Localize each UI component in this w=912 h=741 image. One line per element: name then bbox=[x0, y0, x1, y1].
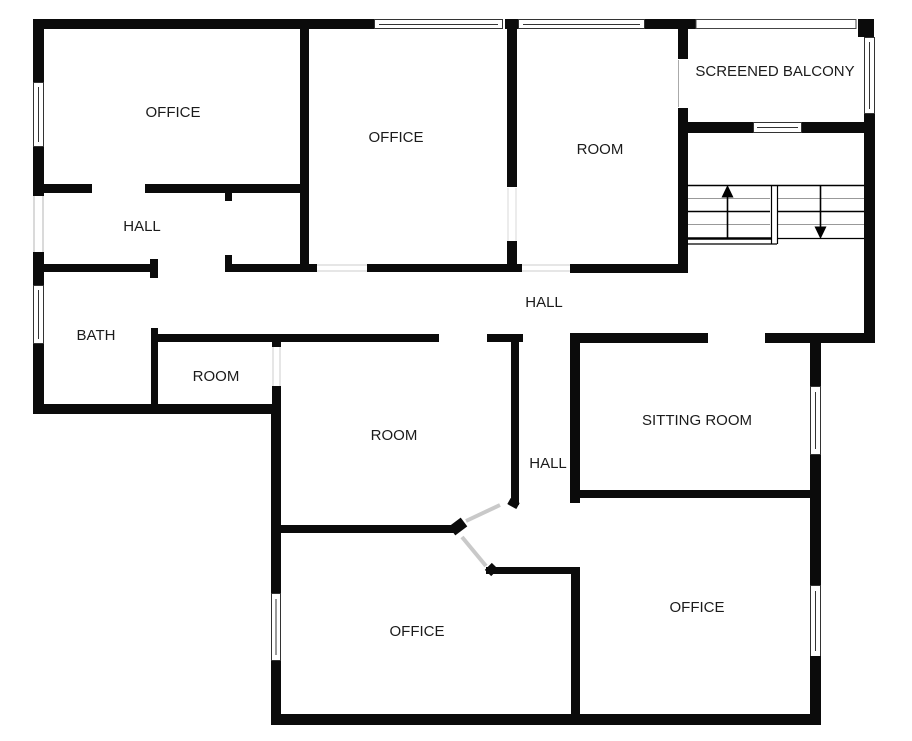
svg-text:SITTING ROOM: SITTING ROOM bbox=[642, 412, 752, 429]
svg-text:OFFICE: OFFICE bbox=[390, 623, 445, 640]
svg-text:HALL: HALL bbox=[529, 455, 567, 472]
svg-text:HALL: HALL bbox=[123, 218, 161, 235]
svg-text:OFFICE: OFFICE bbox=[670, 599, 725, 616]
svg-text:SCREENED BALCONY: SCREENED BALCONY bbox=[695, 63, 854, 80]
svg-text:OFFICE: OFFICE bbox=[146, 104, 201, 121]
svg-text:ROOM: ROOM bbox=[371, 427, 418, 444]
svg-text:HALL: HALL bbox=[525, 294, 563, 311]
svg-text:OFFICE: OFFICE bbox=[369, 129, 424, 146]
svg-text:ROOM: ROOM bbox=[577, 141, 624, 158]
svg-text:ROOM: ROOM bbox=[193, 368, 240, 385]
svg-text:BATH: BATH bbox=[77, 327, 116, 344]
